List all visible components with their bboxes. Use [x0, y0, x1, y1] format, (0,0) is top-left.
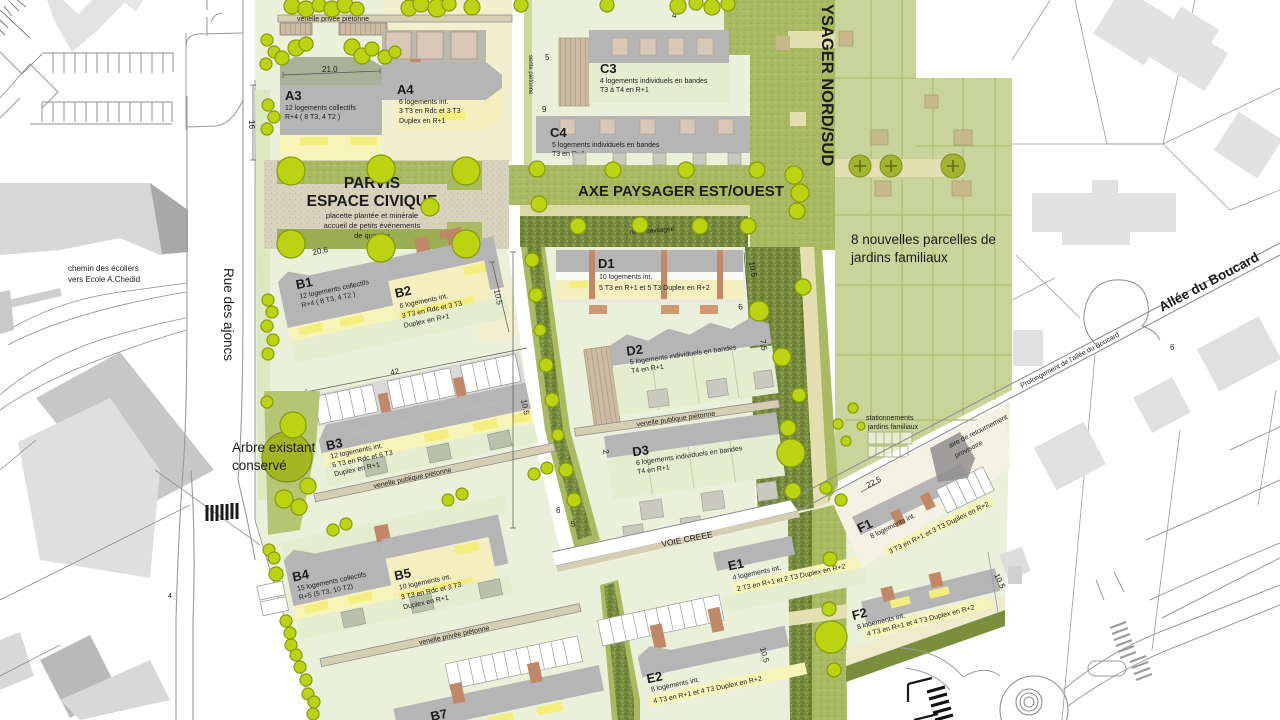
svg-text:Rue des ajoncs: Rue des ajoncs	[221, 268, 236, 361]
svg-text:ESPACE CIVIQUE: ESPACE CIVIQUE	[307, 193, 438, 210]
svg-text:9: 9	[542, 105, 547, 114]
svg-text:jardins familiaux: jardins familiaux	[850, 250, 948, 265]
svg-text:C4: C4	[550, 125, 567, 140]
svg-text:6: 6	[1170, 343, 1175, 352]
svg-text:5 logements individuels en ban: 5 logements individuels en bandes	[552, 142, 660, 149]
svg-text:D2: D2	[625, 342, 644, 359]
svg-text:A3: A3	[285, 88, 302, 103]
svg-text:stationnements: stationnements	[866, 415, 914, 422]
svg-text:jardins familiaux: jardins familiaux	[867, 424, 919, 431]
svg-text:D1: D1	[598, 256, 615, 271]
svg-text:vers Ecole A.Chedid: vers Ecole A.Chedid	[68, 275, 140, 284]
svg-text:5: 5	[545, 53, 550, 62]
svg-text:T3 à T4 en R+1: T3 à T4 en R+1	[600, 87, 649, 94]
svg-text:A4: A4	[397, 82, 414, 97]
svg-text:C3: C3	[600, 61, 617, 76]
svg-text:4: 4	[168, 593, 172, 600]
svg-text:conservé: conservé	[232, 458, 287, 473]
svg-text:placette plantée et minérale: placette plantée et minérale	[326, 211, 418, 220]
svg-text:6: 6	[556, 506, 561, 515]
svg-text:YSAGER NORD/SUD: YSAGER NORD/SUD	[818, 4, 836, 166]
svg-text:4 logements individuels en ban: 4 logements individuels en bandes	[600, 78, 708, 85]
svg-text:16: 16	[247, 120, 256, 129]
svg-text:Arbre existant: Arbre existant	[232, 440, 316, 455]
svg-text:5 T3 en R+1 et 5 T3 Duplex en: 5 T3 en R+1 et 5 T3 Duplex en R+2	[599, 285, 710, 292]
svg-text:AXE PAYSAGER EST/OUEST: AXE PAYSAGER EST/OUEST	[578, 183, 784, 200]
svg-text:accueil de petits événements: accueil de petits événements	[324, 221, 421, 230]
svg-text:6 logements int.: 6 logements int.	[399, 99, 448, 106]
svg-text:10 logements int.: 10 logements int.	[599, 274, 652, 281]
svg-text:D3: D3	[631, 442, 650, 459]
svg-text:3 T3 en Rdc et 3 T3: 3 T3 en Rdc et 3 T3	[399, 108, 461, 115]
svg-text:chemin des écoliers: chemin des écoliers	[68, 264, 139, 273]
svg-text:R+4 ( 8 T3, 4 T2 ): R+4 ( 8 T3, 4 T2 )	[285, 114, 340, 121]
svg-text:12 logements collectifs: 12 logements collectifs	[285, 105, 356, 112]
svg-text:sente piétonne: sente piétonne	[527, 55, 533, 95]
svg-text:8 nouvelles parcelles de: 8 nouvelles parcelles de	[851, 232, 996, 247]
svg-text:Duplex en R+1: Duplex en R+1	[399, 118, 446, 125]
svg-text:B7: B7	[429, 706, 448, 720]
